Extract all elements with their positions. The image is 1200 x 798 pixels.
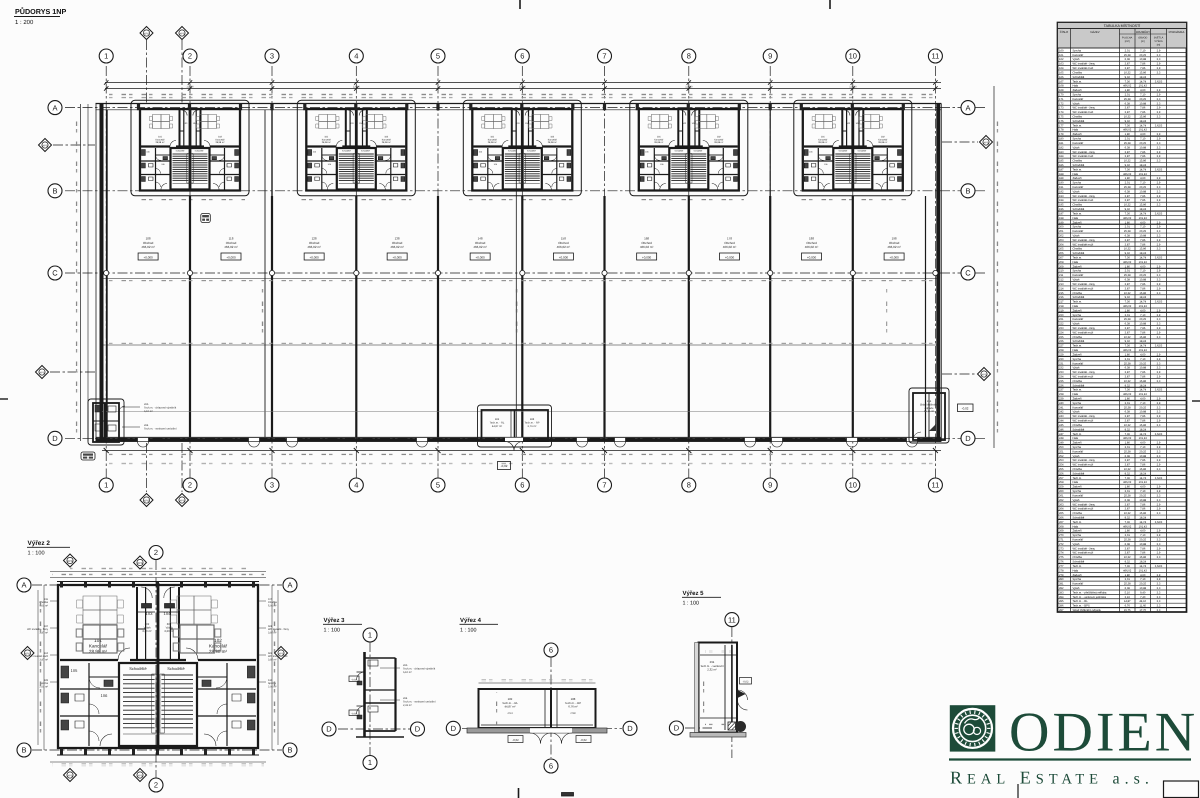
- svg-text:3,87: 3,87: [1125, 420, 1131, 423]
- svg-text:230: 230: [1059, 358, 1064, 361]
- svg-text:10,32: 10,32: [1124, 292, 1131, 295]
- svg-text:7,10: 7,10: [1140, 270, 1146, 273]
- svg-text:7,36: 7,36: [1125, 389, 1131, 392]
- svg-text:10,32: 10,32: [1124, 116, 1131, 119]
- svg-text:1,80: 1,80: [1125, 221, 1131, 224]
- svg-text:2,9: 2,9: [1157, 371, 1161, 374]
- svg-text:20,25: 20,25: [1139, 495, 1146, 498]
- svg-text:7,10: 7,10: [1140, 534, 1146, 537]
- svg-text:2,01: 2,01: [1125, 182, 1131, 185]
- svg-text:1: 1: [368, 758, 372, 767]
- svg-text:7,10: 7,10: [1140, 402, 1146, 405]
- svg-text:3,3: 3,3: [1157, 279, 1161, 282]
- svg-text:7,10: 7,10: [1140, 182, 1146, 185]
- svg-text:9,32: 9,32: [1125, 561, 1131, 564]
- svg-text:Tech.m.: Tech.m.: [1073, 521, 1083, 524]
- svg-text:[m2]: [m2]: [1125, 40, 1130, 43]
- svg-text:Tech.m.: Tech.m.: [1073, 257, 1083, 260]
- svg-text:WC invalidé muži: WC invalidé muži: [1073, 508, 1094, 511]
- svg-text:185: 185: [1059, 160, 1064, 163]
- svg-text:Kancelář: Kancelář: [1073, 274, 1084, 277]
- svg-text:1,80: 1,80: [1125, 574, 1131, 577]
- svg-text:235: 235: [1059, 380, 1064, 383]
- svg-text:101,43: 101,43: [1139, 525, 1148, 528]
- svg-text:209: 209: [1059, 265, 1064, 268]
- svg-text:466,02: 466,02: [1123, 129, 1132, 132]
- svg-text:A: A: [287, 581, 292, 590]
- svg-text:269: 269: [1059, 530, 1064, 533]
- svg-text:XPS: XPS: [42, 144, 47, 147]
- svg-text:Tech.m.: Tech.m.: [1073, 124, 1083, 127]
- svg-text:3,3: 3,3: [1157, 98, 1161, 101]
- svg-text:+0,000: +0,000: [642, 255, 652, 259]
- svg-text:Výtah: Výtah: [1073, 455, 1080, 458]
- svg-text:18,24: 18,24: [1139, 517, 1146, 520]
- svg-text:3,87: 3,87: [1125, 107, 1131, 110]
- svg-text:10,88: 10,88: [1139, 235, 1146, 238]
- svg-text:4,60: 4,60: [1140, 574, 1146, 577]
- svg-text:205: 205: [1059, 248, 1064, 251]
- svg-text:253: 253: [1059, 459, 1064, 462]
- svg-text:Sklad tříděného odpadu: Sklad tříděného odpadu: [1073, 609, 1102, 612]
- svg-text:1 : 100: 1 : 100: [460, 628, 477, 634]
- svg-text:252: 252: [1059, 455, 1064, 458]
- svg-text:10,32: 10,32: [1124, 160, 1131, 163]
- svg-text:1 : 100: 1 : 100: [28, 551, 45, 557]
- svg-text:162: 162: [1059, 58, 1064, 61]
- svg-text:2,9: 2,9: [1157, 133, 1161, 136]
- svg-text:Sprcha: Sprcha: [1073, 446, 1082, 449]
- svg-text:10,32: 10,32: [1124, 468, 1131, 471]
- svg-text:2: 2: [188, 481, 192, 490]
- svg-text:-0,02: -0,02: [501, 464, 508, 468]
- svg-text:D: D: [326, 725, 332, 734]
- svg-text:15,86: 15,86: [1139, 160, 1146, 163]
- svg-text:Chodba: Chodba: [1073, 336, 1083, 339]
- svg-text:263: 263: [1059, 503, 1064, 506]
- svg-text:2,9: 2,9: [1157, 459, 1161, 462]
- svg-text:7,86: 7,86: [1140, 508, 1146, 511]
- svg-text:6,38: 6,38: [1125, 411, 1131, 414]
- svg-text:2,9: 2,9: [1157, 63, 1161, 66]
- svg-text:1,80: 1,80: [1125, 530, 1131, 533]
- svg-text:25,38: 25,38: [1124, 450, 1131, 453]
- svg-text:20,25: 20,25: [1139, 54, 1146, 57]
- svg-text:2,9: 2,9: [1157, 534, 1161, 537]
- svg-text:10,88: 10,88: [1139, 323, 1146, 326]
- svg-text:4,60: 4,60: [1140, 530, 1146, 533]
- svg-text:189: 189: [1059, 177, 1064, 180]
- svg-text:20,25: 20,25: [1139, 406, 1146, 409]
- svg-text:3,3: 3,3: [1157, 406, 1161, 409]
- svg-text:20,25: 20,25: [1139, 186, 1146, 189]
- svg-text:228: 228: [1059, 349, 1064, 352]
- svg-text:B: B: [965, 187, 970, 196]
- svg-text:9,32: 9,32: [1125, 472, 1131, 475]
- svg-text:Zádveří: Zádveří: [1073, 486, 1082, 489]
- svg-text:175: 175: [1059, 116, 1064, 119]
- svg-text:3,87: 3,87: [1125, 415, 1131, 418]
- svg-text:3,3: 3,3: [1157, 424, 1161, 427]
- svg-text:Kancelář: Kancelář: [1073, 539, 1084, 542]
- svg-text:Hala: Hala: [1073, 261, 1079, 264]
- svg-text:WC invalidé muži: WC invalidé muži: [1073, 67, 1094, 70]
- svg-text:287: 287: [1059, 609, 1064, 612]
- svg-text:C: C: [965, 269, 971, 278]
- svg-text:259: 259: [1059, 486, 1064, 489]
- svg-text:3,87: 3,87: [1125, 283, 1131, 286]
- svg-text:Schodiště: Schodiště: [1073, 517, 1085, 520]
- svg-text:2,9: 2,9: [1157, 226, 1161, 229]
- svg-text:258: 258: [1059, 481, 1064, 484]
- svg-text:9,32: 9,32: [1125, 208, 1131, 211]
- svg-text:4,60: 4,60: [1140, 354, 1146, 357]
- svg-text:2,01: 2,01: [1125, 446, 1131, 449]
- svg-text:B: B: [52, 187, 57, 196]
- svg-text:Kancelář: Kancelář: [1073, 362, 1084, 365]
- svg-text:14,74: 14,74: [1139, 389, 1146, 392]
- svg-text:25,38: 25,38: [1124, 539, 1131, 542]
- svg-text:3,3: 3,3: [1157, 186, 1161, 189]
- svg-text:20,25: 20,25: [1139, 450, 1146, 453]
- svg-text:Schodiště: Schodiště: [1073, 472, 1085, 475]
- svg-text:7,36: 7,36: [1125, 477, 1131, 480]
- svg-text:WC invalidé - ženy: WC invalidé - ženy: [1073, 327, 1096, 330]
- svg-text:223: 223: [1059, 327, 1064, 330]
- svg-text:WC invalidé - ženy: WC invalidé - ženy: [1073, 459, 1096, 462]
- svg-text:WC invalidé - ženy: WC invalidé - ženy: [1073, 63, 1096, 66]
- svg-text:2,9: 2,9: [1157, 287, 1161, 290]
- svg-text:WC invalidé - ženy: WC invalidé - ženy: [1073, 195, 1096, 198]
- svg-text:-0,02: -0,02: [351, 678, 357, 681]
- svg-text:WC invalidé muži: WC invalidé muži: [1073, 331, 1094, 334]
- svg-text:6,38: 6,38: [1125, 367, 1131, 370]
- svg-text:Výtah: Výtah: [1073, 587, 1080, 590]
- svg-text:2,32 m²: 2,32 m²: [707, 668, 717, 672]
- svg-text:+0,000: +0,000: [226, 255, 236, 259]
- svg-text:Sprcha: Sprcha: [1073, 94, 1082, 97]
- svg-text:247: 247: [1059, 433, 1064, 436]
- svg-text:2,9: 2,9: [1157, 464, 1161, 467]
- svg-text:7,10: 7,10: [1140, 226, 1146, 229]
- svg-text:25,38: 25,38: [1124, 318, 1131, 321]
- svg-text:D: D: [965, 434, 971, 443]
- svg-text:10,32: 10,32: [1124, 72, 1131, 75]
- svg-text:D: D: [415, 725, 421, 734]
- svg-text:25,38: 25,38: [1124, 406, 1131, 409]
- svg-text:3,3: 3,3: [1157, 583, 1161, 586]
- svg-text:25,38: 25,38: [1124, 230, 1131, 233]
- svg-text:10,88: 10,88: [1139, 190, 1146, 193]
- svg-text:257: 257: [1059, 477, 1064, 480]
- svg-text:25,38: 25,38: [1124, 583, 1131, 586]
- svg-text:Zádveří: Zádveří: [1073, 574, 1082, 577]
- svg-text:3,3: 3,3: [1157, 230, 1161, 233]
- svg-text:3,87: 3,87: [1125, 376, 1131, 379]
- svg-text:1: 1: [104, 481, 108, 490]
- svg-text:XPS: XPS: [179, 32, 184, 35]
- svg-text:196: 196: [1059, 208, 1064, 211]
- svg-text:466,02 m²: 466,02 m²: [141, 245, 155, 249]
- svg-text:101,43: 101,43: [1139, 261, 1148, 264]
- svg-text:1,80: 1,80: [1125, 398, 1131, 401]
- svg-text:243: 243: [1059, 415, 1064, 418]
- svg-text:166: 166: [1059, 76, 1064, 79]
- svg-text:2,9: 2,9: [1157, 89, 1161, 92]
- svg-text:7,86: 7,86: [1140, 331, 1146, 334]
- svg-text:Schodiště: Schodiště: [1073, 384, 1085, 387]
- svg-text:Sprcha: Sprcha: [1073, 314, 1082, 317]
- svg-text:Zádveří: Zádveří: [1073, 177, 1082, 180]
- svg-text:Tech.m.: Tech.m.: [1073, 433, 1083, 436]
- svg-text:2,9: 2,9: [1157, 574, 1161, 577]
- svg-text:5: 5: [436, 481, 440, 490]
- svg-text:XPS: XPS: [39, 371, 44, 374]
- svg-text:7,86: 7,86: [1140, 155, 1146, 158]
- svg-text:20,25: 20,25: [1139, 539, 1146, 542]
- svg-text:101,43: 101,43: [1139, 349, 1148, 352]
- svg-text:7,86: 7,86: [1140, 67, 1146, 70]
- svg-text:281: 281: [1059, 583, 1064, 586]
- svg-text:182: 182: [1059, 146, 1064, 149]
- svg-text:Výtah: Výtah: [1073, 102, 1080, 105]
- svg-text:44,87 m²: 44,87 m²: [492, 425, 502, 428]
- svg-text:6,60 m²: 6,60 m²: [164, 630, 173, 633]
- svg-text:7,10: 7,10: [1140, 490, 1146, 493]
- svg-text:7,36: 7,36: [1125, 80, 1131, 83]
- svg-text:286: 286: [1059, 605, 1064, 608]
- svg-text:18,24: 18,24: [1139, 252, 1146, 255]
- svg-text:217: 217: [1059, 301, 1064, 304]
- svg-text:5,10: 5,10: [1125, 591, 1131, 594]
- svg-text:7,36: 7,36: [1125, 124, 1131, 127]
- svg-text:A: A: [52, 103, 57, 112]
- svg-text:2: 2: [154, 548, 158, 557]
- svg-text:3,3: 3,3: [1157, 362, 1161, 365]
- svg-text:WC invalidé - ženy: WC invalidé - ženy: [1073, 415, 1096, 418]
- svg-text:Zádveří: Zádveří: [1073, 221, 1082, 224]
- svg-text:7,86: 7,86: [1140, 371, 1146, 374]
- svg-text:11: 11: [932, 481, 940, 490]
- svg-text:Chodba: Chodba: [1073, 248, 1083, 251]
- svg-text:10,88: 10,88: [1139, 279, 1146, 282]
- svg-text:2,9: 2,9: [1157, 354, 1161, 357]
- svg-text:7,86: 7,86: [1140, 459, 1146, 462]
- svg-text:4,60: 4,60: [1140, 177, 1146, 180]
- svg-text:20,25: 20,25: [1139, 318, 1146, 321]
- svg-text:25,38: 25,38: [1124, 362, 1131, 365]
- svg-text:2,9: 2,9: [1157, 314, 1161, 317]
- svg-text:WC invalidé muži: WC invalidé muži: [1073, 376, 1094, 379]
- svg-text:221: 221: [1059, 318, 1064, 321]
- svg-text:603: 603: [167, 623, 172, 626]
- svg-text:284: 284: [1059, 596, 1064, 599]
- svg-text:2,01: 2,01: [1125, 138, 1131, 141]
- svg-text:2,01: 2,01: [1125, 490, 1131, 493]
- svg-text:Kancelář: Kancelář: [1073, 318, 1084, 321]
- svg-text:1 : 100: 1 : 100: [324, 628, 341, 634]
- svg-text:18,24: 18,24: [1139, 120, 1146, 123]
- svg-text:280: 280: [1059, 578, 1064, 581]
- svg-text:Kancelář: Kancelář: [1073, 230, 1084, 233]
- svg-text:2,9: 2,9: [1157, 138, 1161, 141]
- svg-text:3,87: 3,87: [1125, 547, 1131, 550]
- svg-text:6,38: 6,38: [1125, 235, 1131, 238]
- svg-text:7,86: 7,86: [1140, 107, 1146, 110]
- svg-text:270: 270: [1059, 534, 1064, 537]
- svg-text:6,10 m²: 6,10 m²: [403, 671, 412, 674]
- svg-text:3: 3: [270, 481, 274, 490]
- svg-text:10: 10: [849, 481, 857, 490]
- svg-text:2,9: 2,9: [1157, 111, 1161, 114]
- svg-text:264: 264: [1059, 508, 1064, 511]
- svg-text:Schodiště: Schodiště: [1073, 428, 1085, 431]
- svg-text:Kancelář: Kancelář: [1073, 98, 1084, 101]
- svg-text:3,3: 3,3: [1157, 116, 1161, 119]
- svg-text:15,86: 15,86: [1139, 512, 1146, 515]
- svg-text:10,88: 10,88: [1139, 543, 1146, 546]
- svg-text:9: 9: [768, 481, 772, 490]
- svg-text:179: 179: [1059, 133, 1064, 136]
- svg-text:7,86: 7,86: [1140, 239, 1146, 242]
- svg-text:WC invalidé - ženy: WC invalidé - ženy: [1073, 107, 1096, 110]
- svg-text:183: 183: [1059, 151, 1064, 154]
- svg-text:2,9: 2,9: [1157, 327, 1161, 330]
- svg-text:1: 1: [368, 631, 372, 640]
- svg-text:2,9: 2,9: [1157, 177, 1161, 180]
- svg-text:2,9: 2,9: [1157, 155, 1161, 158]
- svg-text:466,02: 466,02: [1123, 85, 1132, 88]
- svg-text:18,24: 18,24: [1139, 208, 1146, 211]
- svg-text:271: 271: [1059, 539, 1064, 542]
- svg-text:B: B: [287, 746, 292, 755]
- svg-text:4: 4: [354, 52, 358, 61]
- svg-text:10: 10: [849, 52, 857, 61]
- svg-text:Tech.m.: Tech.m.: [1073, 345, 1083, 348]
- svg-text:5: 5: [436, 52, 440, 61]
- svg-text:3,62/3: 3,62/3: [1155, 521, 1163, 524]
- svg-text:278: 278: [1059, 569, 1064, 572]
- svg-text:226: 226: [1059, 340, 1064, 343]
- svg-text:7,86: 7,86: [1140, 111, 1146, 114]
- svg-text:3,3: 3,3: [1157, 411, 1161, 414]
- svg-text:+0,000: +0,000: [392, 255, 402, 259]
- svg-text:245: 245: [1059, 424, 1064, 427]
- svg-text:10,32: 10,32: [1124, 556, 1131, 559]
- svg-text:+0,000: +0,000: [143, 255, 153, 259]
- svg-text:3,87: 3,87: [1125, 371, 1131, 374]
- svg-text:3,62/3: 3,62/3: [1155, 168, 1163, 171]
- svg-text:Sprcha: Sprcha: [1073, 402, 1082, 405]
- svg-text:1 : 200: 1 : 200: [15, 19, 34, 26]
- svg-text:2,9: 2,9: [1157, 221, 1161, 224]
- svg-text:190: 190: [1059, 182, 1064, 185]
- svg-text:2,9: 2,9: [1157, 503, 1161, 506]
- svg-text:3,87: 3,87: [1125, 195, 1131, 198]
- svg-text:+0,000: +0,000: [559, 255, 569, 259]
- svg-text:197: 197: [1059, 213, 1064, 216]
- svg-text:3,3: 3,3: [1157, 512, 1161, 515]
- svg-text:14,74: 14,74: [1139, 213, 1146, 216]
- svg-text:WC invalidé muži: WC invalidé muži: [1073, 464, 1094, 467]
- svg-text:Chodba: Chodba: [1073, 160, 1083, 163]
- svg-text:101,43: 101,43: [1139, 173, 1148, 176]
- svg-text:2,01: 2,01: [1125, 314, 1131, 317]
- svg-text:Výtah: Výtah: [144, 627, 151, 630]
- svg-text:Zádveří: Zádveří: [1073, 133, 1082, 136]
- svg-text:6,38: 6,38: [1125, 587, 1131, 590]
- svg-text:2: 2: [154, 781, 158, 790]
- svg-text:279: 279: [1059, 574, 1064, 577]
- svg-text:7: 7: [602, 481, 606, 490]
- svg-text:D: D: [627, 724, 633, 733]
- svg-text:Kancelář: Kancelář: [1073, 495, 1084, 498]
- svg-text:6,38: 6,38: [1125, 499, 1131, 502]
- svg-text:WC invalidé - ženy: WC invalidé - ženy: [1073, 239, 1096, 242]
- svg-text:Sprcha: Sprcha: [1073, 490, 1082, 493]
- svg-text:Výtah: Výtah: [1073, 411, 1080, 414]
- svg-text:2,9: 2,9: [1157, 508, 1161, 511]
- svg-text:7,40: 7,40: [1140, 596, 1146, 599]
- svg-text:3,3: 3,3: [1157, 142, 1161, 145]
- svg-text:1,80: 1,80: [1125, 354, 1131, 357]
- svg-text:4,60: 4,60: [1140, 133, 1146, 136]
- svg-text:WC invalidé muži: WC invalidé muži: [1073, 287, 1094, 290]
- svg-text:3,62/3: 3,62/3: [1155, 433, 1163, 436]
- svg-text:10,88: 10,88: [1139, 455, 1146, 458]
- svg-text:2,9: 2,9: [1157, 49, 1161, 52]
- svg-text:225: 225: [1059, 336, 1064, 339]
- svg-text:466,02: 466,02: [1123, 173, 1132, 176]
- svg-text:44,87 m²: 44,87 m²: [504, 705, 515, 709]
- svg-text:Hala: Hala: [1073, 481, 1079, 484]
- svg-text:C: C: [52, 269, 58, 278]
- svg-text:188: 188: [1059, 173, 1064, 176]
- svg-text:3,3: 3,3: [1157, 235, 1161, 238]
- svg-text:15,86: 15,86: [1139, 204, 1146, 207]
- svg-text:3,62/3: 3,62/3: [1155, 301, 1163, 304]
- svg-text:Sprcha: Sprcha: [1073, 138, 1082, 141]
- svg-text:14,74: 14,74: [1139, 477, 1146, 480]
- svg-text:VÝŠKA: VÝŠKA: [1154, 39, 1163, 43]
- svg-text:2,9: 2,9: [1157, 107, 1161, 110]
- svg-text:7,86: 7,86: [1140, 552, 1146, 555]
- svg-text:Tech.m. - RL: Tech.m. - RL: [1073, 600, 1089, 603]
- svg-text:3,87: 3,87: [1125, 111, 1131, 114]
- svg-text:178: 178: [1059, 129, 1064, 132]
- svg-text:3,3: 3,3: [1157, 543, 1161, 546]
- svg-text:WC invalidé muži: WC invalidé muži: [1073, 420, 1094, 423]
- svg-text:2,9: 2,9: [1157, 490, 1161, 493]
- svg-text:1,80: 1,80: [1125, 177, 1131, 180]
- svg-text:466,02: 466,02: [1123, 349, 1132, 352]
- svg-text:+0,000: +0,000: [309, 255, 319, 259]
- svg-text:202: 202: [1059, 235, 1064, 238]
- svg-text:227: 227: [1059, 345, 1064, 348]
- svg-text:Zádveří: Zádveří: [1073, 265, 1082, 268]
- svg-text:466,02 m²: 466,02 m²: [390, 245, 404, 249]
- svg-text:3,62/3: 3,62/3: [1155, 565, 1163, 568]
- svg-text:9: 9: [768, 52, 772, 61]
- svg-text:3,62/3: 3,62/3: [1155, 389, 1163, 392]
- svg-text:11,60: 11,60: [1140, 605, 1147, 608]
- svg-text:Výtah: Výtah: [1073, 543, 1080, 546]
- svg-text:Výtah: Výtah: [166, 627, 173, 630]
- svg-text:4,60: 4,60: [1140, 309, 1146, 312]
- svg-text:Kancelář: Kancelář: [1073, 450, 1084, 453]
- svg-text:10,88: 10,88: [1139, 587, 1146, 590]
- svg-text:2,9: 2,9: [1157, 243, 1161, 246]
